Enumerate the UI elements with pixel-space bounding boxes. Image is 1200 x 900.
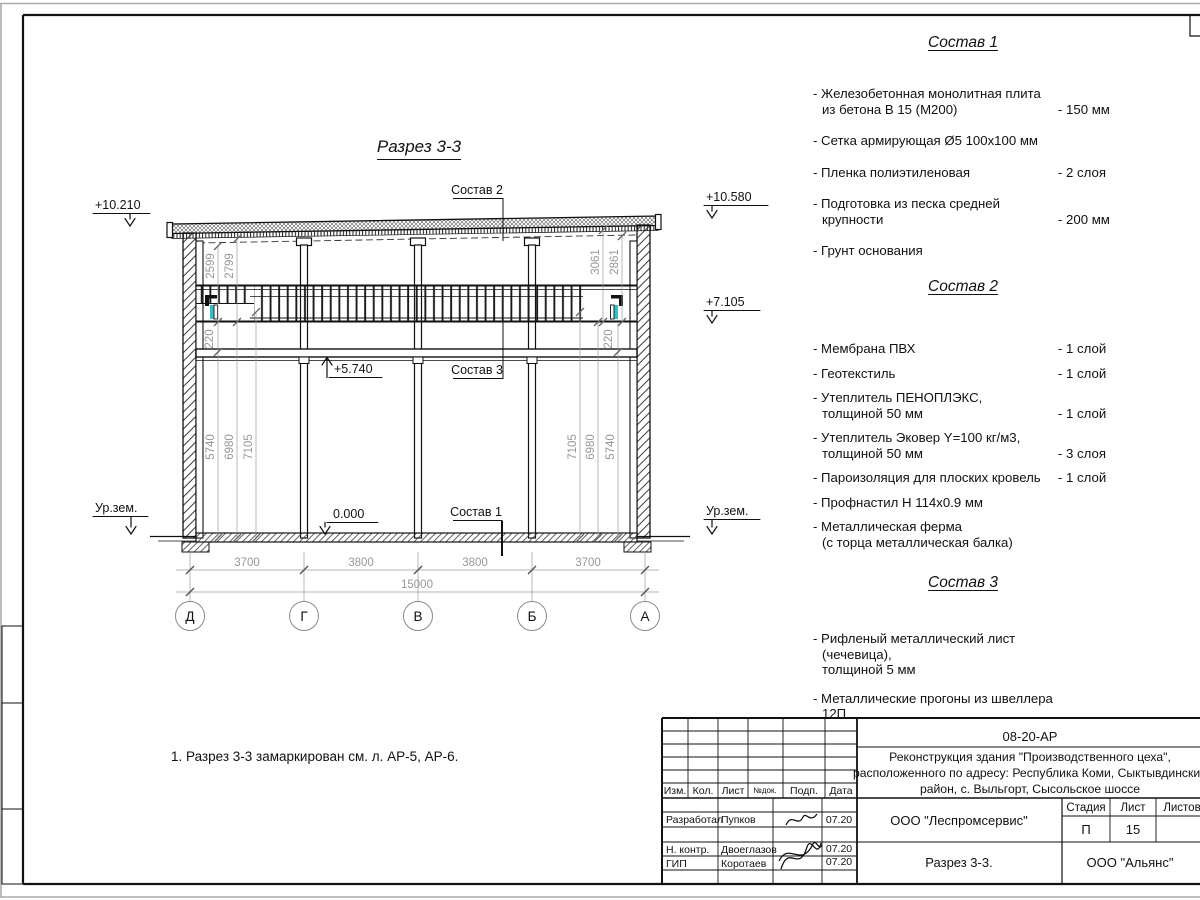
dim-right-top-2: 2861 — [609, 249, 621, 275]
axis-letter-g: Г — [300, 609, 308, 624]
spec-item: - Железобетонная монолитная плита из бет… — [813, 86, 1113, 117]
role-ncontrol: Н. контр. — [666, 844, 709, 856]
signature-developer — [786, 814, 817, 825]
stage-value: П — [1081, 822, 1090, 837]
spec-item: - Пленка полиэтиленовая - 2 слоя — [813, 165, 1113, 181]
dim-left-top-1: 2599 — [205, 253, 217, 279]
spec-item: - Профнастил Н 114x0.9 мм — [813, 495, 1113, 511]
ground-level-right: Ур.зем. — [706, 504, 748, 518]
columns — [297, 238, 540, 538]
axis-letter-v: В — [413, 609, 422, 624]
cyan-detail-right — [611, 295, 624, 319]
sheet-note: 1. Разрез 3-3 замаркирован см. л. АР-5, … — [171, 749, 458, 764]
spec-item: - Утеплитель ПЕНОПЛЭКС, толщиной 50 мм -… — [813, 390, 1113, 421]
dim-right-2: 6980 — [585, 434, 597, 460]
sheets-label: Листов — [1163, 802, 1200, 814]
dim-span-4: 3700 — [575, 557, 601, 569]
spec-item: - Мембрана ПВХ - 1 слой — [813, 341, 1113, 357]
col-list: Лист — [722, 785, 745, 797]
col-kol: Кол. — [693, 785, 714, 797]
section-view: 3700 3800 3800 3700 15000 Д Г В Б А — [93, 137, 768, 631]
name-ncontrol: Двоеглазов — [721, 844, 777, 856]
spec-header-3: Состав 3 — [813, 574, 1113, 592]
col-podp: Подп. — [790, 785, 818, 797]
callout-sostav-3: Состав 3 — [451, 363, 503, 377]
name-gip: Коротаев — [721, 858, 767, 870]
elevation-arrow-icon — [707, 311, 717, 324]
floor-slab — [150, 533, 690, 552]
dim-band-right: 220 — [603, 329, 615, 348]
project-line-2: расположенного по адресу: Республика Ком… — [853, 766, 1200, 780]
dim-left-1: 5740 — [205, 434, 217, 460]
name-developer: Пупков — [721, 814, 756, 826]
dim-span-1: 3700 — [234, 557, 260, 569]
spec-item: - Металлическая ферма (с торца металличе… — [813, 519, 1113, 550]
role-developer: Разработал — [666, 814, 723, 826]
spec-item: - Подготовка из песка средней крупности … — [813, 196, 1113, 227]
axis-letter-a: А — [640, 609, 649, 624]
elevation-arrow-icon — [125, 214, 135, 227]
dim-left-3: 7105 — [243, 434, 255, 460]
role-gip: ГИП — [666, 858, 687, 870]
org-name: ООО "Леспромсервис" — [890, 813, 1028, 828]
corner-sheet-box — [1190, 15, 1200, 36]
spec-item: - Утеплитель Эковер Y=100 кг/м3, толщино… — [813, 430, 1113, 461]
spec-item: - Пароизоляция для плоских кровель - 1 с… — [813, 470, 1113, 486]
elevation-left-top: +10.210 — [95, 198, 141, 212]
spec-header-1: Состав 1 — [813, 34, 1113, 52]
spec-item: - Сетка армирующая Ø5 100x100 мм — [813, 133, 1113, 149]
dim-band-left: 220 — [204, 329, 216, 348]
dim-right-1: 7105 — [567, 434, 579, 460]
foundation-left — [182, 542, 209, 552]
section-title: Разрез 3-3 — [377, 137, 462, 156]
spec-list-1: - Железобетонная монолитная плита из бет… — [813, 86, 1113, 275]
spec-list-3: - Рифленый металлический лист (чечевица)… — [813, 631, 1113, 735]
customer-name: ООО "Альянс" — [1087, 855, 1174, 870]
axis-letter-b: Б — [528, 609, 537, 624]
elevation-mezzanine: +5.740 — [334, 362, 373, 376]
col-ndok: №док. — [753, 786, 776, 795]
foundation-right — [624, 542, 651, 552]
dim-span-3: 3800 — [462, 557, 488, 569]
spec-item: - Грунт основания — [813, 243, 1113, 259]
spec-item: - Металлические прогоны из швеллера 12П — [813, 691, 1113, 722]
sheet-value: 15 — [1126, 822, 1140, 837]
spec-list-2: - Мембрана ПВХ - 1 слой - Геотекстиль - … — [813, 341, 1113, 559]
callout-sostav-2: Состав 2 — [451, 183, 503, 197]
spec-item: - Геотекстиль - 1 слой — [813, 366, 1113, 382]
col-izm: Изм. — [664, 785, 687, 797]
dim-right-top-1: 3061 — [590, 249, 602, 275]
axis-markers: Д Г В Б А — [176, 602, 660, 631]
dim-left-2: 6980 — [224, 434, 236, 460]
sheet-label: Лист — [1121, 802, 1147, 814]
metal-truss — [196, 286, 637, 322]
callout-sostav-1: Состав 1 — [450, 505, 502, 519]
mezzanine-floor — [196, 349, 637, 364]
date-developer: 07.20 — [826, 814, 852, 826]
elevation-arrow-icon — [320, 523, 330, 535]
date-ncontrol: 07.20 — [826, 843, 852, 855]
project-line-3: район, с. Выльгорт, Сысольское шоссе — [920, 782, 1140, 796]
ground-level-left: Ур.зем. — [95, 501, 137, 515]
project-line-1: Реконструкция здания "Производственного … — [889, 750, 1171, 764]
spec-item: - Рифленый металлический лист (чечевица)… — [813, 631, 1113, 678]
date-gip: 07.20 — [826, 856, 852, 868]
callouts: Состав 2 Состав 3 Состав 1 — [450, 183, 503, 556]
title-block: 08-20-АР Реконструкция здания "Производс… — [662, 718, 1200, 884]
dim-total: 15000 — [401, 579, 433, 591]
elevation-floor: 0.000 — [333, 507, 364, 521]
dim-span-2: 3800 — [348, 557, 374, 569]
elevation-right-mid: +7.105 — [706, 295, 745, 309]
dim-left-top-2: 2799 — [224, 253, 236, 279]
sheet-title: Разрез 3-3. — [925, 855, 992, 870]
elevation-arrow-icon — [707, 206, 717, 219]
elevation-arrow-icon — [707, 520, 717, 535]
dimensions-bottom: 3700 3800 3800 3700 15000 — [176, 552, 659, 601]
left-filing-strip — [2, 626, 23, 884]
spec-header-2: Состав 2 — [813, 278, 1113, 296]
elevation-arrow-icon — [126, 517, 136, 535]
elevation-right-top: +10.580 — [706, 190, 752, 204]
drawing-sheet: 3700 3800 3800 3700 15000 Д Г В Б А — [0, 0, 1200, 900]
stage-label: Стадия — [1066, 802, 1105, 814]
dim-right-3: 5740 — [605, 434, 617, 460]
axis-letter-d: Д — [185, 609, 194, 624]
col-data: Дата — [829, 785, 852, 797]
